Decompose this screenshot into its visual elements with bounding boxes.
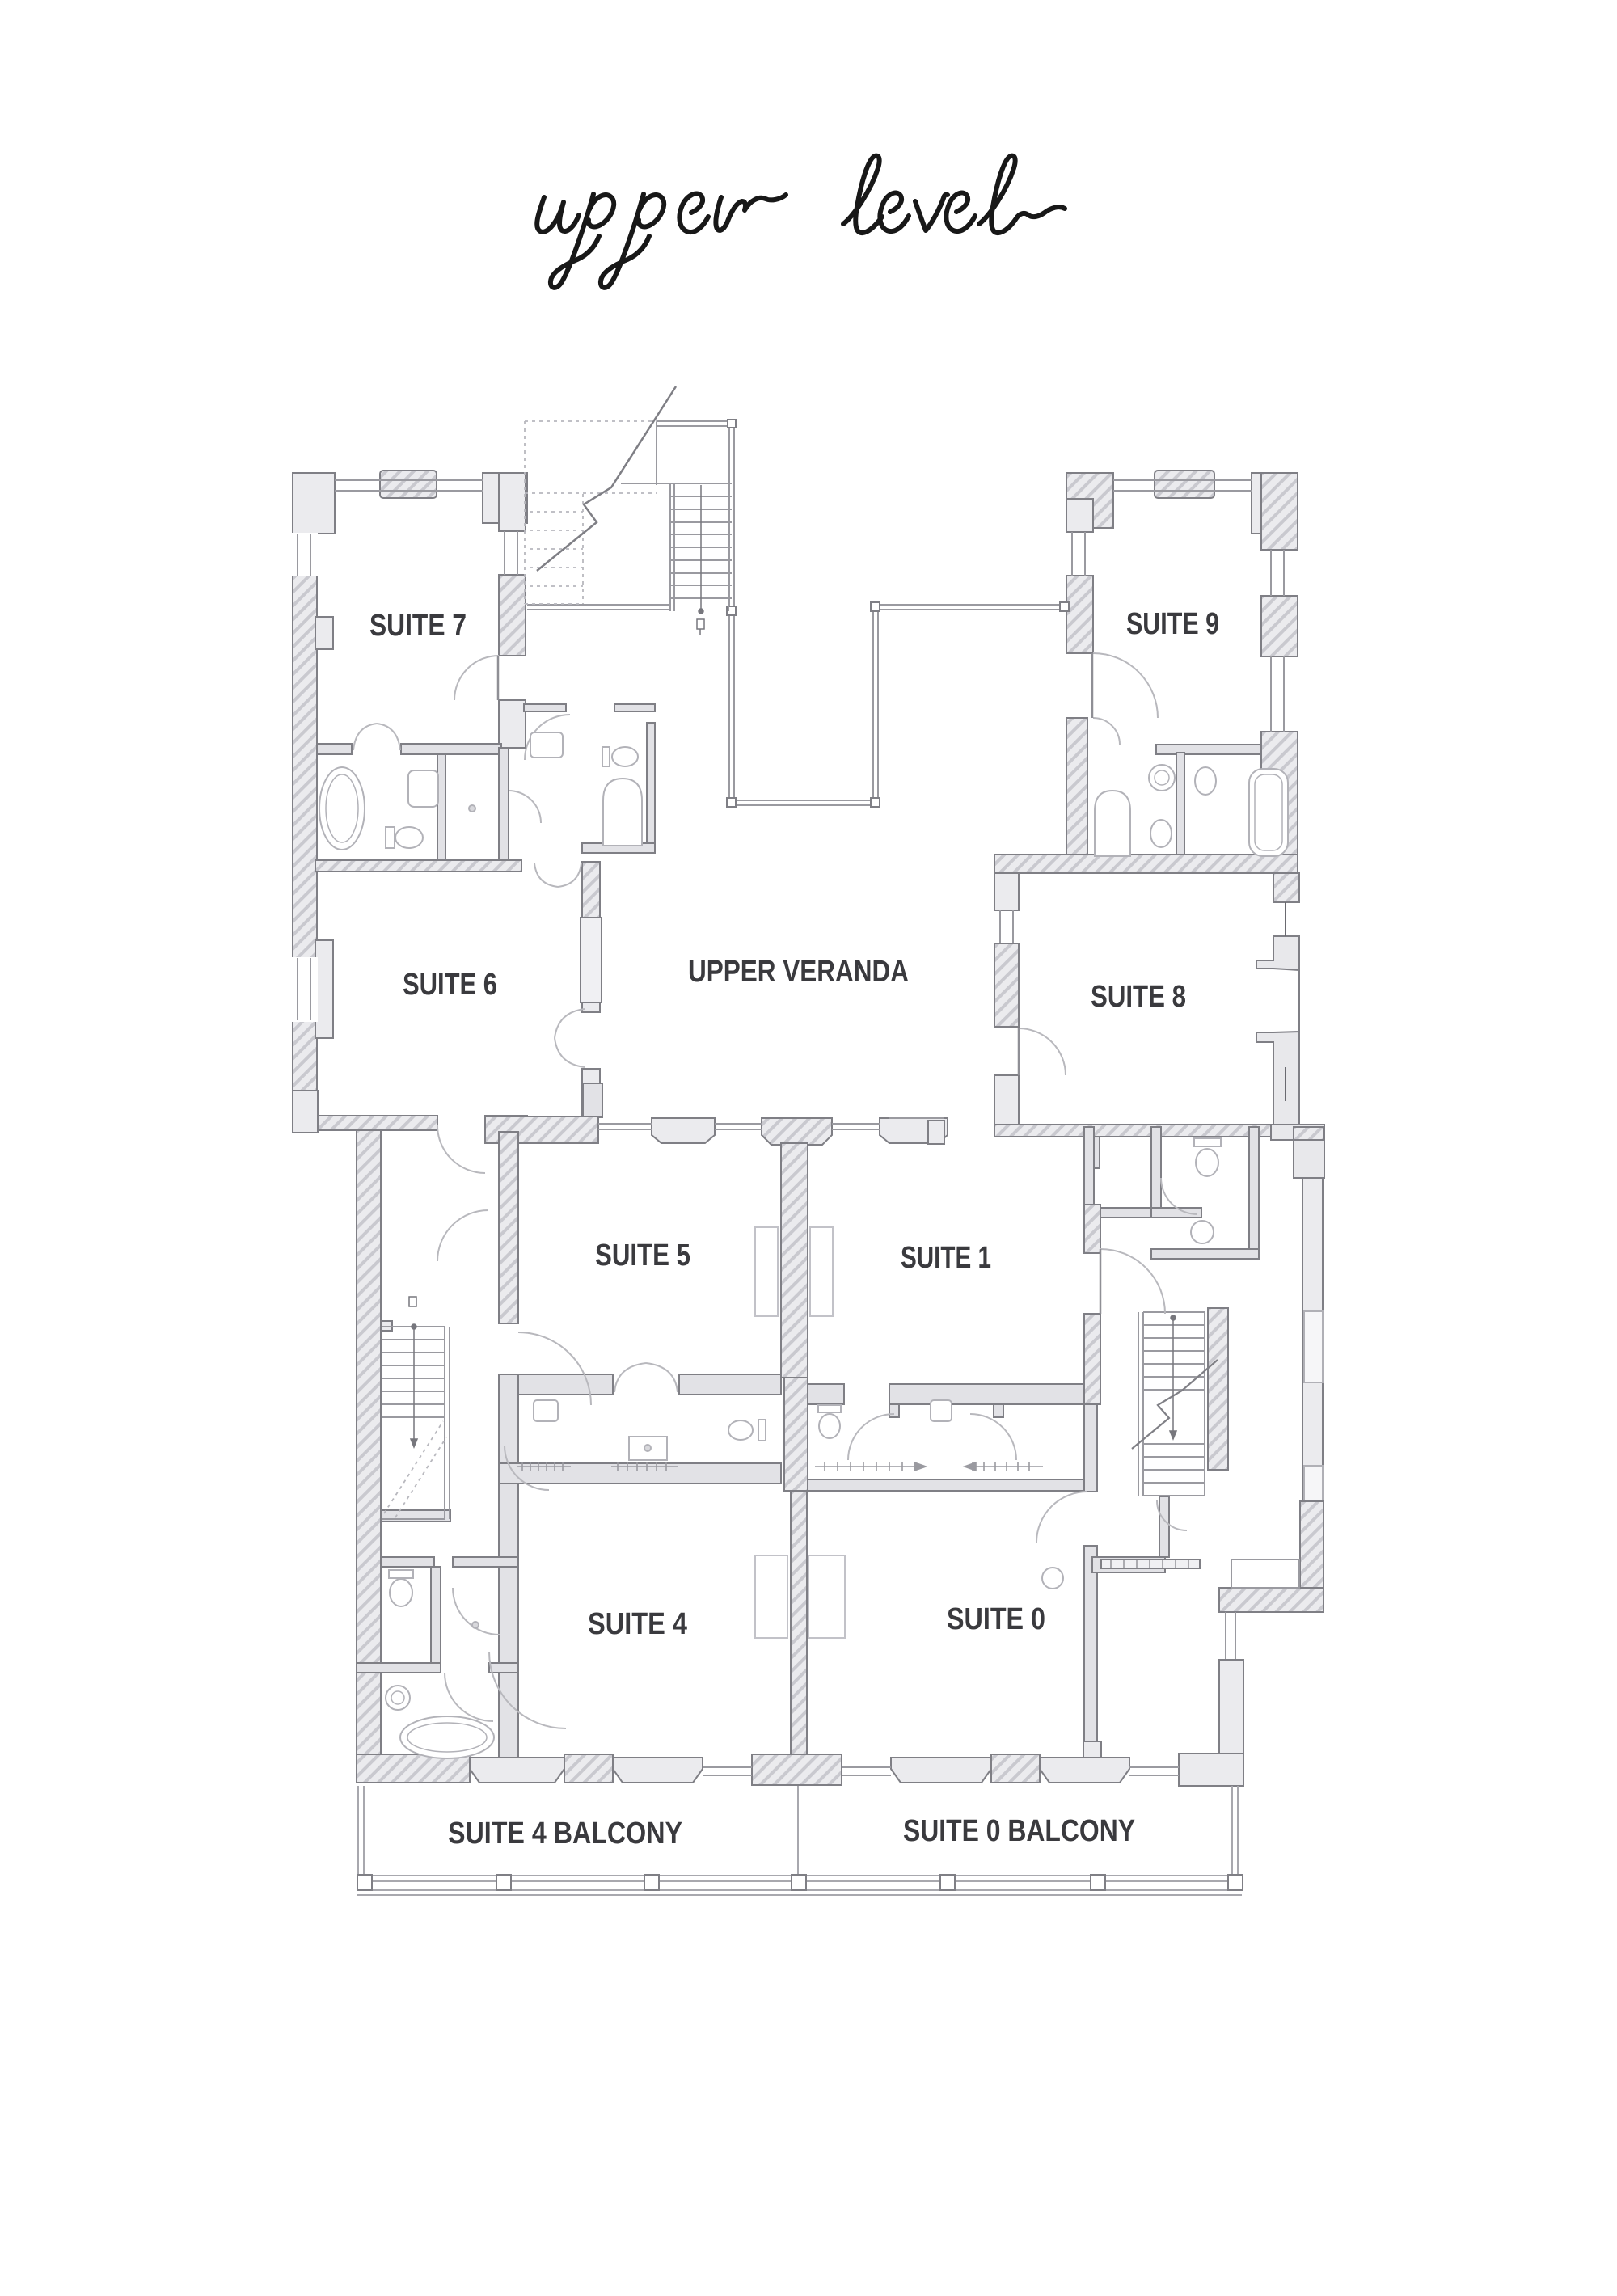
svg-text:SUITE 8: SUITE 8 bbox=[1091, 980, 1186, 1014]
svg-text:SUITE 0 BALCONY: SUITE 0 BALCONY bbox=[903, 1814, 1135, 1848]
svg-text:SUITE 6: SUITE 6 bbox=[403, 968, 497, 1002]
svg-text:SUITE 4 BALCONY: SUITE 4 BALCONY bbox=[448, 1817, 682, 1851]
svg-text:SUITE 4: SUITE 4 bbox=[588, 1607, 687, 1641]
svg-text:UPPER VERANDA: UPPER VERANDA bbox=[688, 955, 909, 989]
svg-text:SUITE 0: SUITE 0 bbox=[947, 1602, 1045, 1636]
svg-text:SUITE 1: SUITE 1 bbox=[901, 1241, 991, 1275]
svg-text:SUITE 5: SUITE 5 bbox=[595, 1239, 690, 1273]
svg-text:SUITE 9: SUITE 9 bbox=[1126, 607, 1219, 641]
svg-text:SUITE 7: SUITE 7 bbox=[369, 609, 467, 643]
